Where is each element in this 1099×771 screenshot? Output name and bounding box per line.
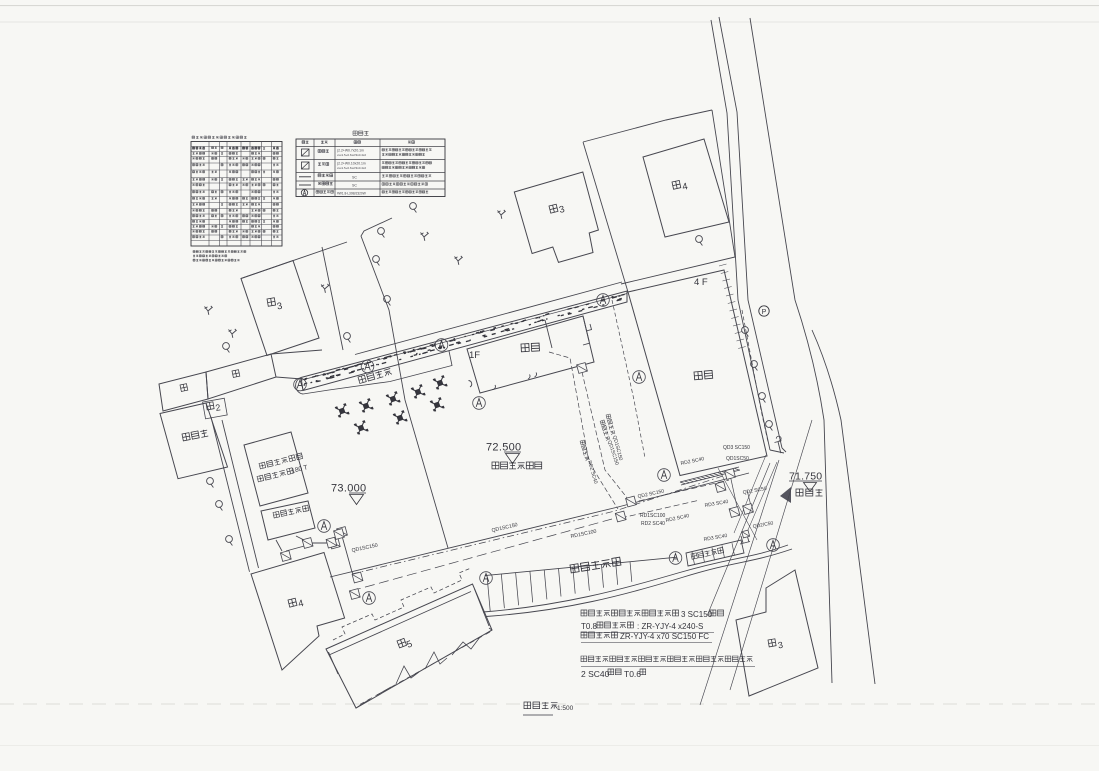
svg-text:ZR-YJY-4 x70 SC150 FC: ZR-YJY-4 x70 SC150 FC bbox=[620, 632, 709, 641]
svg-text:QD1SC50: QD1SC50 bbox=[726, 456, 749, 462]
svg-text:P: P bbox=[762, 309, 767, 316]
svg-text:1F: 1F bbox=[469, 350, 480, 361]
svg-text:: ZR-YJY-4 x240-S: : ZR-YJY-4 x240-S bbox=[637, 622, 703, 631]
svg-text:RD1SC100: RD1SC100 bbox=[640, 513, 666, 519]
svg-text:T0.6: T0.6 bbox=[624, 669, 641, 679]
svg-text:1:500: 1:500 bbox=[557, 705, 574, 712]
svg-text:RD2 SC40: RD2 SC40 bbox=[641, 521, 665, 527]
svg-text:SC: SC bbox=[352, 175, 357, 179]
svg-text:T0.8: T0.8 bbox=[581, 622, 598, 631]
svg-text:xxx1.5+0.6x2/3x0.4x2: xxx1.5+0.6x2/3x0.4x2 bbox=[337, 166, 366, 170]
svg-text:4 F: 4 F bbox=[694, 277, 708, 288]
svg-text:SC: SC bbox=[352, 183, 357, 187]
svg-text:xxx1.5+0.6x2/3x0.4x2: xxx1.5+0.6x2/3x0.4x2 bbox=[337, 153, 366, 157]
svg-text:2 SC40: 2 SC40 bbox=[581, 669, 610, 679]
svg-text:QD3 SC150: QD3 SC150 bbox=[723, 445, 750, 451]
svg-text:#W1.8-L30B/2320W: #W1.8-L30B/2320W bbox=[337, 191, 366, 195]
